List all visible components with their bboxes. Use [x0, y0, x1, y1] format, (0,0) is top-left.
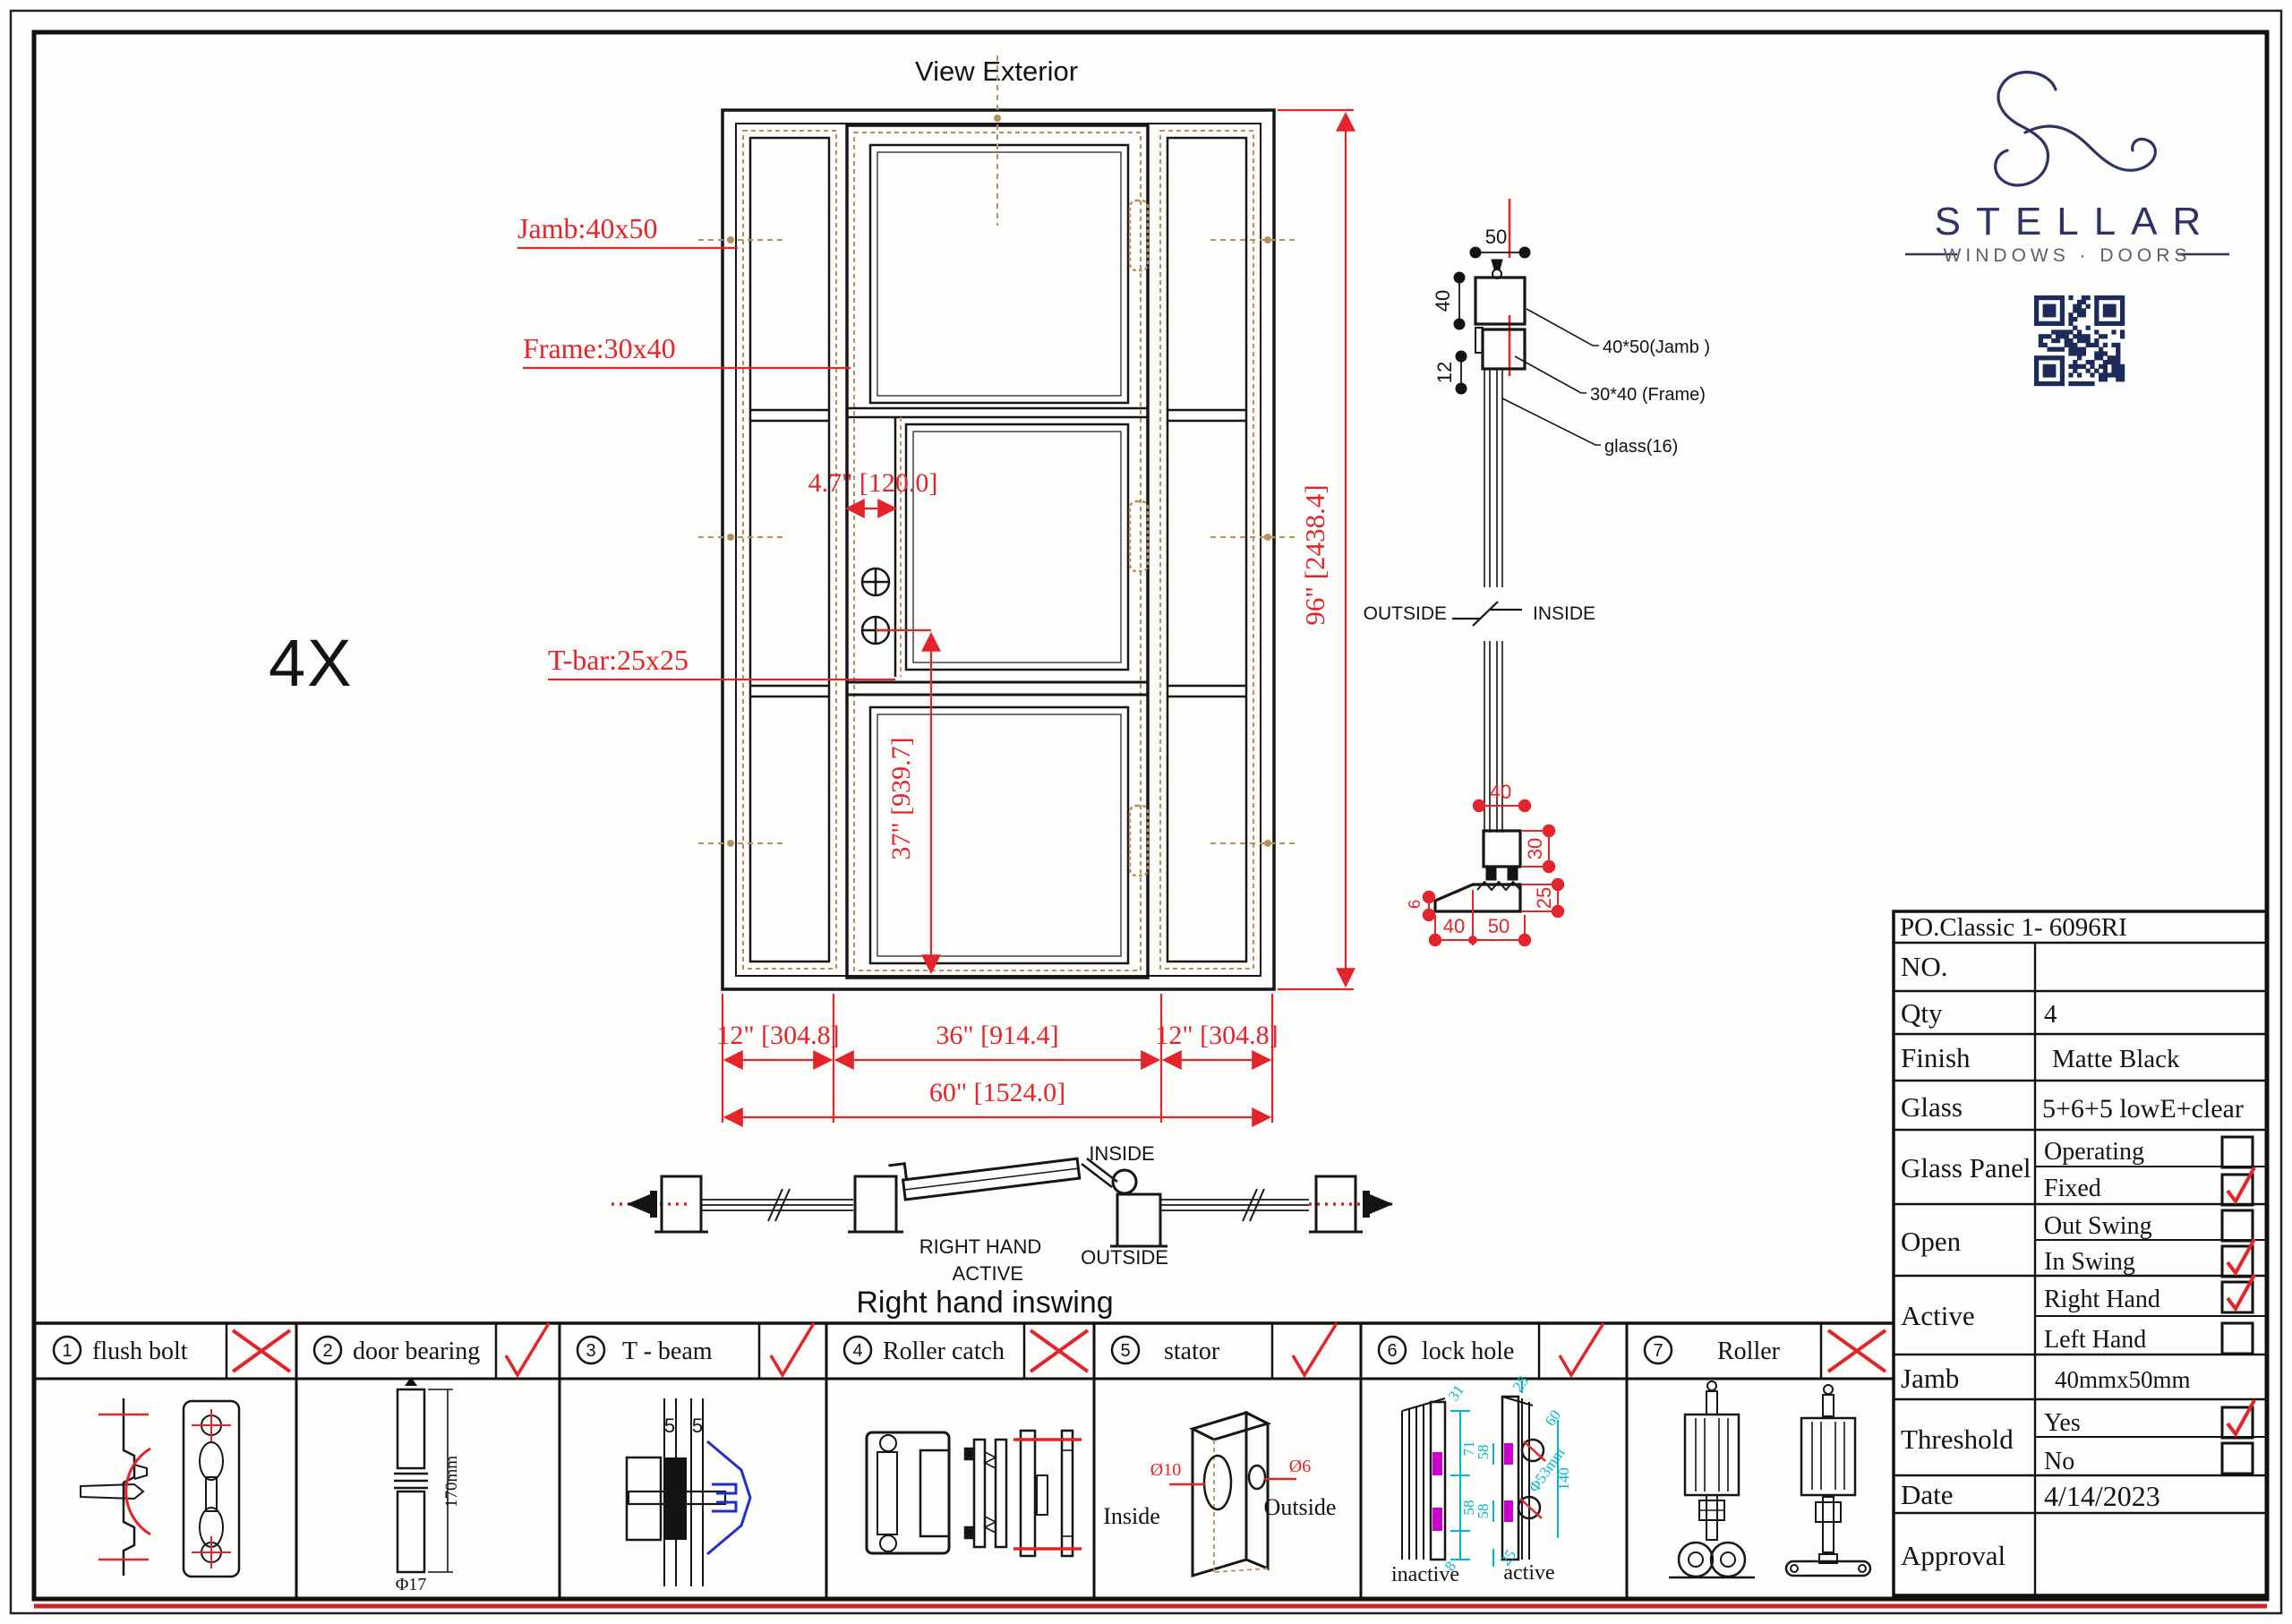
row-label-finish: Finish	[1901, 1042, 1971, 1073]
value-finish: Matte Black	[2052, 1045, 2180, 1073]
tbeam-glass-dim-1: 5	[664, 1415, 675, 1437]
row-label-no: NO.	[1901, 951, 1948, 982]
hw-mark-4	[1031, 1330, 1088, 1372]
sill-dim-6: 6	[1406, 900, 1424, 909]
order-info-table: PO.Classic 1- 6096RI NO. Qty Finish Glas…	[1894, 911, 2267, 1595]
section-dim-40: 40	[1432, 290, 1454, 312]
option-left-hand: Left Hand	[2044, 1326, 2146, 1354]
hw-name-7: Roller	[1717, 1338, 1781, 1365]
lock-inactive-label: inactive	[1391, 1563, 1459, 1586]
hw-mark-7	[1828, 1330, 1886, 1372]
stator-dia-10: Ø10	[1150, 1460, 1181, 1480]
hw-name-4: Roller catch	[883, 1338, 1005, 1365]
section-glass-label: glass(16)	[1604, 437, 1678, 457]
brand-tagline: WINDOWS · DOORS	[1944, 245, 2192, 266]
plan-section: INSIDE OUTSIDE RIGHT HAND ACTIVE Right h…	[611, 1142, 1393, 1320]
option-in-swing: In Swing	[2044, 1248, 2135, 1276]
stile-dim: 4.7" [120.0]	[808, 468, 938, 498]
row-label-jamb: Jamb	[1901, 1363, 1959, 1394]
value-jamb: 40mmx50mm	[2055, 1366, 2191, 1393]
po-number: PO.Classic 1- 6096RI	[1900, 913, 2127, 942]
qr-code	[2034, 295, 2125, 386]
hw-num-7: 7	[1653, 1341, 1663, 1361]
jamb-section-detail: 50 40 12 40*50(Jamb ) 30*40 (Frame) glas…	[1364, 199, 1710, 945]
door-elevation	[698, 56, 1298, 989]
right-width-dim: 12" [304.8]	[1155, 1021, 1278, 1050]
hinge-icons	[1130, 201, 1148, 876]
sill-dim-50: 50	[1488, 915, 1509, 937]
section-dim-12: 12	[1433, 362, 1456, 383]
hw-num-4: 4	[852, 1341, 862, 1361]
option-fixed: Fixed	[2044, 1175, 2101, 1202]
brand-logo: STELLAR WINDOWS · DOORS	[1905, 73, 2229, 387]
section-jamb-label: 40*50(Jamb )	[1603, 338, 1710, 357]
value-qty: 4	[2044, 1000, 2057, 1029]
checkbox-fixed	[2222, 1167, 2254, 1205]
checkbox-yes	[2222, 1400, 2254, 1438]
row-label-date: Date	[1901, 1479, 1954, 1510]
hw-mark-3	[771, 1323, 814, 1375]
checkbox-in-swing	[2222, 1239, 2254, 1277]
stator-inside-label: Inside	[1103, 1503, 1160, 1529]
sill-dim-40: 40	[1443, 915, 1465, 937]
handle-dim: 37" [939.7]	[886, 737, 916, 859]
row-label-approval: Approval	[1901, 1540, 2005, 1571]
stator-outside-label: Outside	[1264, 1494, 1337, 1520]
hw-name-1: flush bolt	[92, 1338, 188, 1365]
row-label-open: Open	[1901, 1226, 1962, 1257]
lock-dim-58b: 58	[1475, 1445, 1492, 1460]
swing-caption: Right hand inswing	[856, 1286, 1113, 1320]
option-right-hand: Right Hand	[2044, 1286, 2160, 1313]
option-no: No	[2044, 1448, 2074, 1475]
hw-num-1: 1	[62, 1341, 72, 1361]
shop-drawing-sheet: View Exterior 4X	[0, 0, 2292, 1620]
checkbox-operating	[2222, 1137, 2253, 1167]
tbar-callout: T-bar:25x25	[548, 644, 688, 676]
jamb-callout: Jamb:40x50	[517, 212, 657, 244]
hw-num-6: 6	[1387, 1341, 1397, 1361]
row-label-glass: Glass	[1901, 1091, 1963, 1123]
height-dim: 96" [2438.4]	[1299, 484, 1330, 625]
lock-dim-60: 60	[1542, 1406, 1564, 1429]
checkbox-out-swing	[2222, 1210, 2253, 1241]
hardware-table: 1 2 3 4 5 6 7 flush bolt door bearing T …	[36, 1323, 1894, 1599]
plan-inside-label: INSIDE	[1089, 1142, 1154, 1165]
checkbox-left-hand	[2222, 1323, 2253, 1354]
section-dim-50: 50	[1485, 226, 1507, 248]
sill-dim-40-top: 40	[1490, 781, 1511, 803]
t-beam-icon	[627, 1398, 750, 1586]
plan-outside-label: OUTSIDE	[1081, 1246, 1168, 1269]
value-date: 4/14/2023	[2044, 1480, 2160, 1512]
flush-bolt-icon	[81, 1398, 239, 1577]
checkbox-no	[2222, 1443, 2253, 1474]
value-glass: 5+6+5 lowE+clear	[2042, 1094, 2244, 1124]
hw-name-6: lock hole	[1422, 1338, 1514, 1365]
section-outside-label: OUTSIDE	[1364, 603, 1447, 624]
brand-name: STELLAR	[1935, 200, 2217, 244]
hw-num-2: 2	[322, 1341, 332, 1361]
tbeam-glass-dim-2: 5	[692, 1415, 703, 1437]
row-label-glass-panel: Glass Panel	[1901, 1152, 2031, 1184]
bearing-dia-dim: Φ17	[396, 1575, 427, 1594]
lock-dim-25a: 25	[1509, 1372, 1532, 1395]
roller-icon	[1669, 1381, 1870, 1577]
left-width-dim: 12" [304.8]	[716, 1021, 839, 1050]
row-label-threshold: Threshold	[1901, 1423, 2014, 1455]
option-yes: Yes	[2044, 1409, 2081, 1437]
hw-mark-5	[1293, 1323, 1337, 1375]
row-label-active: Active	[1901, 1300, 1975, 1331]
lock-dim-31: 31	[1445, 1381, 1467, 1404]
hw-mark-2	[506, 1323, 549, 1375]
lock-active-label: active	[1503, 1561, 1554, 1585]
centerline-marks	[698, 56, 1298, 843]
frame-callout: Frame:30x40	[523, 332, 676, 364]
quantity-multiplier: 4X	[269, 626, 354, 700]
row-label-qty: Qty	[1901, 997, 1943, 1029]
section-inside-label: INSIDE	[1533, 603, 1595, 624]
hw-name-5: stator	[1164, 1338, 1220, 1365]
logo-script-icon	[1996, 73, 2156, 185]
section-frame-label: 30*40 (Frame)	[1590, 385, 1706, 405]
hw-num-3: 3	[586, 1341, 595, 1361]
plan-active-label-2: ACTIVE	[953, 1262, 1023, 1285]
sill-dim-30: 30	[1524, 838, 1546, 859]
handle-bore-icon	[862, 568, 889, 644]
lock-dim-58c: 58	[1475, 1504, 1492, 1519]
plan-active-label-1: RIGHT HAND	[919, 1235, 1042, 1258]
hw-mark-6	[1560, 1323, 1604, 1375]
sill-dim-25: 25	[1533, 887, 1555, 909]
option-operating: Operating	[2044, 1138, 2144, 1166]
bearing-length-dim: 170mm	[442, 1456, 461, 1508]
option-out-swing: Out Swing	[2044, 1212, 2152, 1240]
checkbox-right-hand	[2222, 1275, 2254, 1312]
roller-catch-icon	[867, 1431, 1082, 1556]
lock-dim-140: 140	[1555, 1467, 1572, 1491]
total-width-dim: 60" [1524.0]	[929, 1078, 1065, 1107]
center-width-dim: 36" [914.4]	[936, 1021, 1058, 1050]
stator-dia-6: Ø6	[1289, 1457, 1311, 1476]
hw-name-2: door bearing	[353, 1338, 480, 1365]
hw-num-5: 5	[1120, 1341, 1130, 1361]
hw-mark-1	[233, 1330, 290, 1372]
hw-name-3: T - beam	[622, 1338, 713, 1365]
